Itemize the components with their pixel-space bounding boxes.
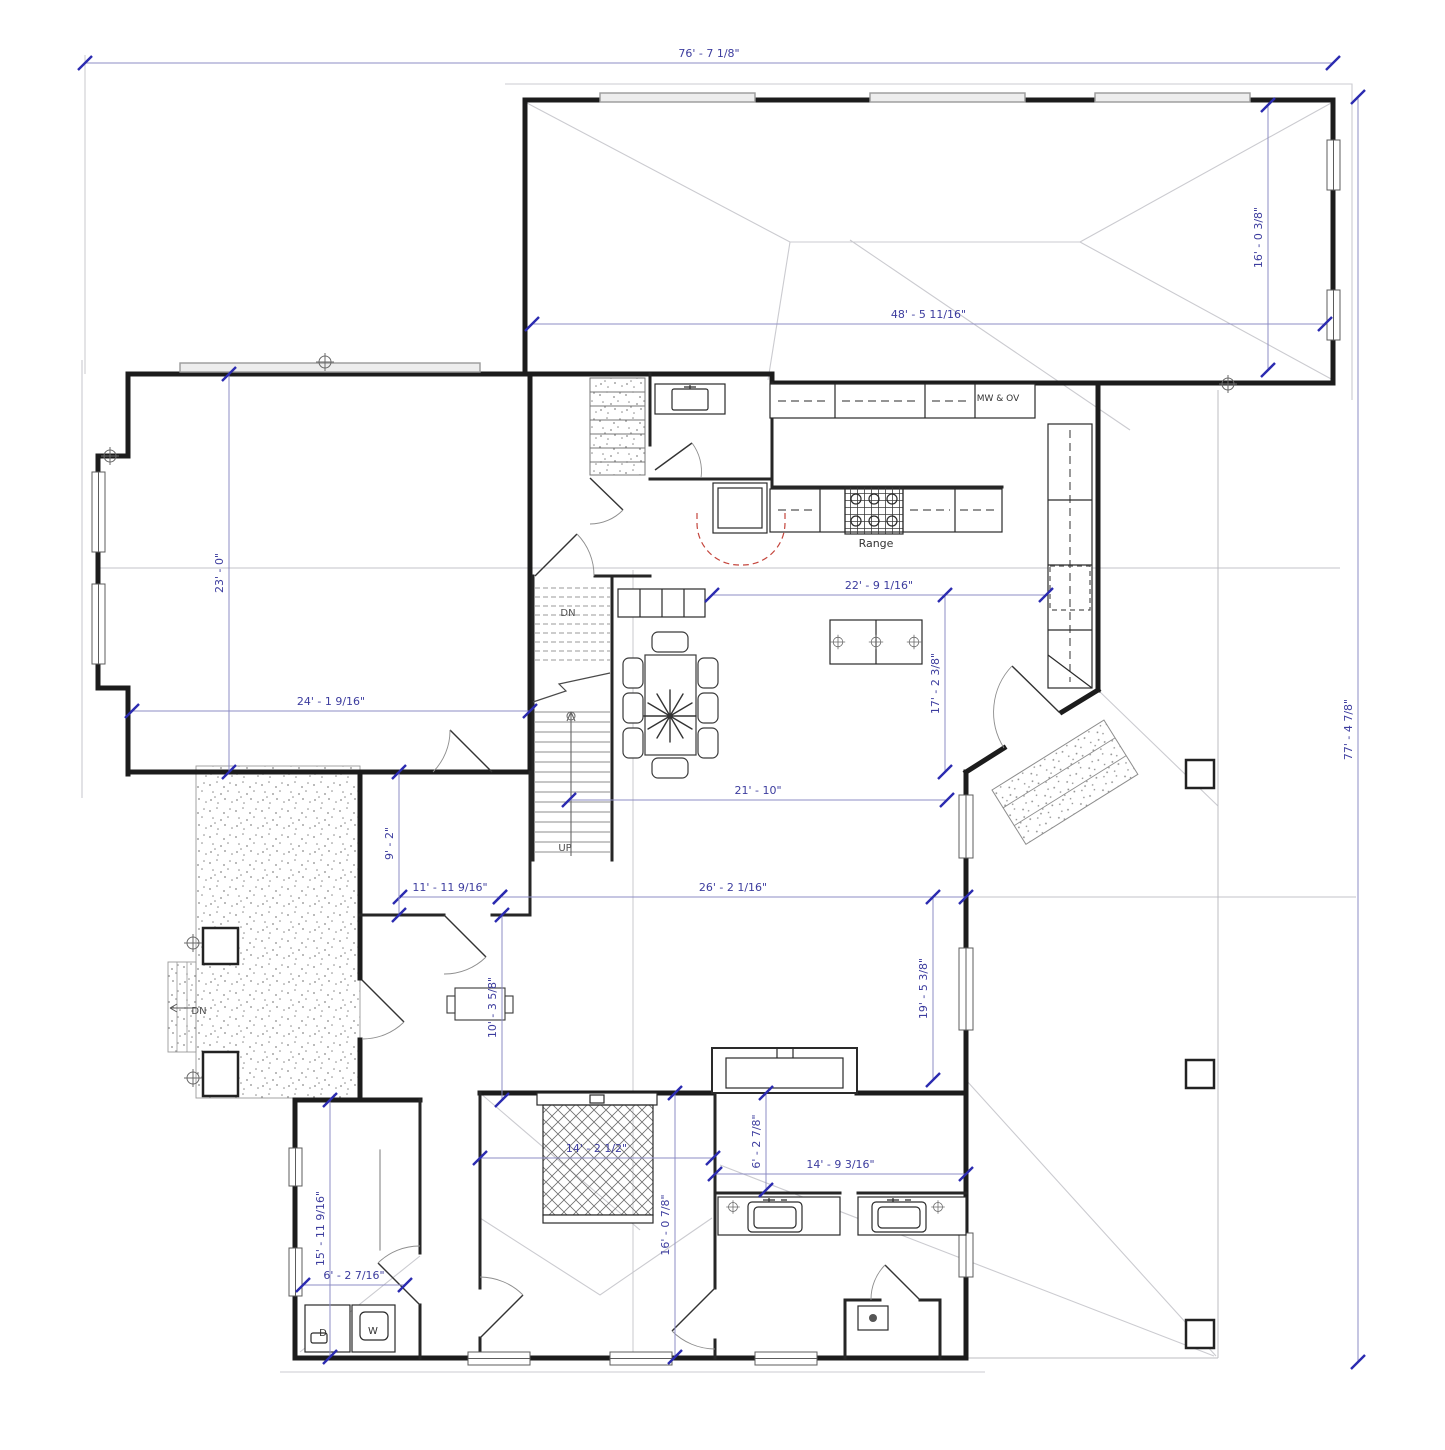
dimension-text-hall-width: 11' - 11 9/16" xyxy=(412,881,487,894)
door-leaf xyxy=(535,534,577,576)
door-leaf xyxy=(362,980,404,1022)
dimension-text-bath-hall-height: 6' - 2 7/8" xyxy=(750,1114,763,1168)
door-swing xyxy=(444,957,486,974)
door-swing xyxy=(433,730,450,772)
dimension-text-porch-depth: 10' - 3 5/8" xyxy=(486,977,499,1038)
stair-break-line xyxy=(533,673,610,702)
door-swing xyxy=(871,1265,885,1300)
patio-post xyxy=(203,1052,238,1096)
dimension-text-left-room-height: 23' - 0" xyxy=(213,553,226,593)
dimension-text-living-width: 26' - 2 1/16" xyxy=(699,881,767,894)
door-leaf xyxy=(450,730,492,772)
entry-cubbies xyxy=(618,589,705,617)
dimension-text-great-room-width: 21' - 10" xyxy=(734,784,781,797)
door-swing xyxy=(480,1277,523,1295)
dryer xyxy=(305,1305,350,1352)
dimension-overall-top: 76' - 7 1/8" xyxy=(78,47,1340,70)
garage-doors xyxy=(180,93,1250,372)
label-washer: W xyxy=(368,1326,378,1337)
patio-post xyxy=(1186,760,1214,788)
window xyxy=(755,1352,817,1365)
dining-chair xyxy=(652,632,688,652)
dining-chair xyxy=(698,658,718,688)
door-leaf xyxy=(655,443,692,470)
window xyxy=(1327,290,1340,340)
garage-steps xyxy=(590,378,645,475)
dimension-text-hall-height: 9' - 2" xyxy=(383,827,396,860)
label-stairs-dn: DN xyxy=(560,608,575,619)
dimension-living-width: 26' - 2 1/16" xyxy=(493,881,973,904)
window xyxy=(959,795,973,858)
dining-chair xyxy=(623,728,643,758)
dimension-overall-right: 77' - 4 7/8" xyxy=(1342,90,1365,1369)
window xyxy=(289,1148,302,1186)
dimension-text-bedroom-width: 14' - 2 1/2" xyxy=(566,1142,627,1155)
roof-lines xyxy=(82,84,1352,1372)
label-patio-dn: DN xyxy=(191,1006,206,1017)
bench-cabinet xyxy=(713,483,767,533)
patio-post xyxy=(1186,1320,1214,1348)
floor-plan-canvas: 76' - 7 1/8"77' - 4 7/8"16' - 0 3/8"48' … xyxy=(0,0,1445,1450)
hall-table-leaf xyxy=(447,996,455,1013)
door-swing xyxy=(692,443,701,478)
floor-plan-svg: 76' - 7 1/8"77' - 4 7/8"16' - 0 3/8"48' … xyxy=(0,0,1445,1450)
door-swing xyxy=(590,510,623,524)
dining-set xyxy=(623,632,718,778)
window xyxy=(959,1233,973,1277)
misc-furniture xyxy=(447,988,513,1020)
dimension-text-laundry-height: 15' - 11 9/16" xyxy=(314,1191,327,1266)
window xyxy=(610,1352,672,1365)
window xyxy=(468,1352,530,1365)
dimension-kitchen-width: 22' - 9 1/16" xyxy=(705,579,1053,602)
dimension-text-patio-depth: 19' - 5 3/8" xyxy=(917,958,930,1019)
vanity xyxy=(718,1197,840,1235)
door-leaf xyxy=(590,478,623,510)
dimension-garage-width: 48' - 5 11/16" xyxy=(525,308,1332,331)
door-swing xyxy=(577,534,594,576)
range xyxy=(845,487,903,534)
door-swing xyxy=(672,1331,715,1349)
dining-chair xyxy=(698,728,718,758)
dimension-text-bath-width: 14' - 9 3/16" xyxy=(806,1158,874,1171)
door-swing xyxy=(994,666,1012,748)
dimension-hall-width: 11' - 11 9/16" xyxy=(393,881,507,904)
reference-lines xyxy=(85,55,1356,1358)
toilet xyxy=(858,1306,888,1330)
dimension-layer: 76' - 7 1/8"77' - 4 7/8"16' - 0 3/8"48' … xyxy=(78,47,1365,1369)
corner-entry-steps xyxy=(992,720,1138,844)
mudroom-sink xyxy=(655,384,725,414)
dimension-bath-hall-height: 6' - 2 7/8" xyxy=(750,1086,773,1197)
garage-door xyxy=(600,93,755,102)
fireplace xyxy=(712,1048,857,1093)
kitchen-east-cabinets xyxy=(1048,424,1092,688)
dimension-text-bedroom-height: 16' - 0 7/8" xyxy=(659,1194,672,1255)
stair-run-dn xyxy=(535,588,610,660)
dimension-text-garage-depth: 16' - 0 3/8" xyxy=(1252,207,1265,268)
dimension-great-room-width: 21' - 10" xyxy=(562,784,954,807)
kitchen-island xyxy=(830,620,922,664)
range-counter xyxy=(770,487,1002,534)
dimension-text-overall-right: 77' - 4 7/8" xyxy=(1342,699,1355,760)
window xyxy=(92,584,105,664)
garage-door xyxy=(1095,93,1250,102)
dimension-kitchen-depth: 17' - 2 3/8" xyxy=(929,588,952,779)
dimension-hall-height: 9' - 2" xyxy=(383,765,406,922)
dimension-text-left-room-width: 24' - 1 9/16" xyxy=(297,695,365,708)
door-leaf xyxy=(444,915,486,957)
dimension-left-room-width: 24' - 1 9/16" xyxy=(125,695,537,718)
window xyxy=(959,948,973,1030)
stair-direction-line xyxy=(567,712,575,856)
door-leaf xyxy=(672,1288,715,1331)
dining-chair xyxy=(652,758,688,778)
label-range: Range xyxy=(859,537,894,550)
dimension-text-garage-width: 48' - 5 11/16" xyxy=(891,308,966,321)
door-leaf xyxy=(885,1265,920,1300)
kitchen-casework xyxy=(618,384,1092,688)
dimension-text-kitchen-depth: 17' - 2 3/8" xyxy=(929,653,942,714)
label-dryer: D xyxy=(319,1328,327,1339)
stair-run-up xyxy=(535,712,610,852)
dimension-text-overall-top: 76' - 7 1/8" xyxy=(678,47,739,60)
dimension-left-room-height: 23' - 0" xyxy=(213,367,236,779)
dining-chair xyxy=(623,658,643,688)
window xyxy=(1327,140,1340,190)
window xyxy=(92,472,105,552)
dimension-bedroom-height: 16' - 0 7/8" xyxy=(659,1086,682,1364)
dining-chair xyxy=(698,693,718,723)
door-leaf xyxy=(480,1295,523,1338)
hall-table-leaf xyxy=(505,996,513,1013)
door-swing xyxy=(362,1022,404,1039)
patio-post xyxy=(1186,1060,1214,1088)
dimension-text-laundry-width: 6' - 2 7/16" xyxy=(323,1269,384,1282)
label-stairs-up: UP xyxy=(558,843,571,854)
label-mw-ov: MW & OV xyxy=(977,394,1020,404)
dimension-bath-width: 14' - 9 3/16" xyxy=(708,1158,973,1181)
patio-post xyxy=(203,928,238,964)
dining-chair xyxy=(623,693,643,723)
vanity xyxy=(858,1197,966,1235)
dimension-text-kitchen-width: 22' - 9 1/16" xyxy=(845,579,913,592)
garage-door xyxy=(870,93,1025,102)
dimension-patio-depth: 19' - 5 3/8" xyxy=(917,890,940,1087)
